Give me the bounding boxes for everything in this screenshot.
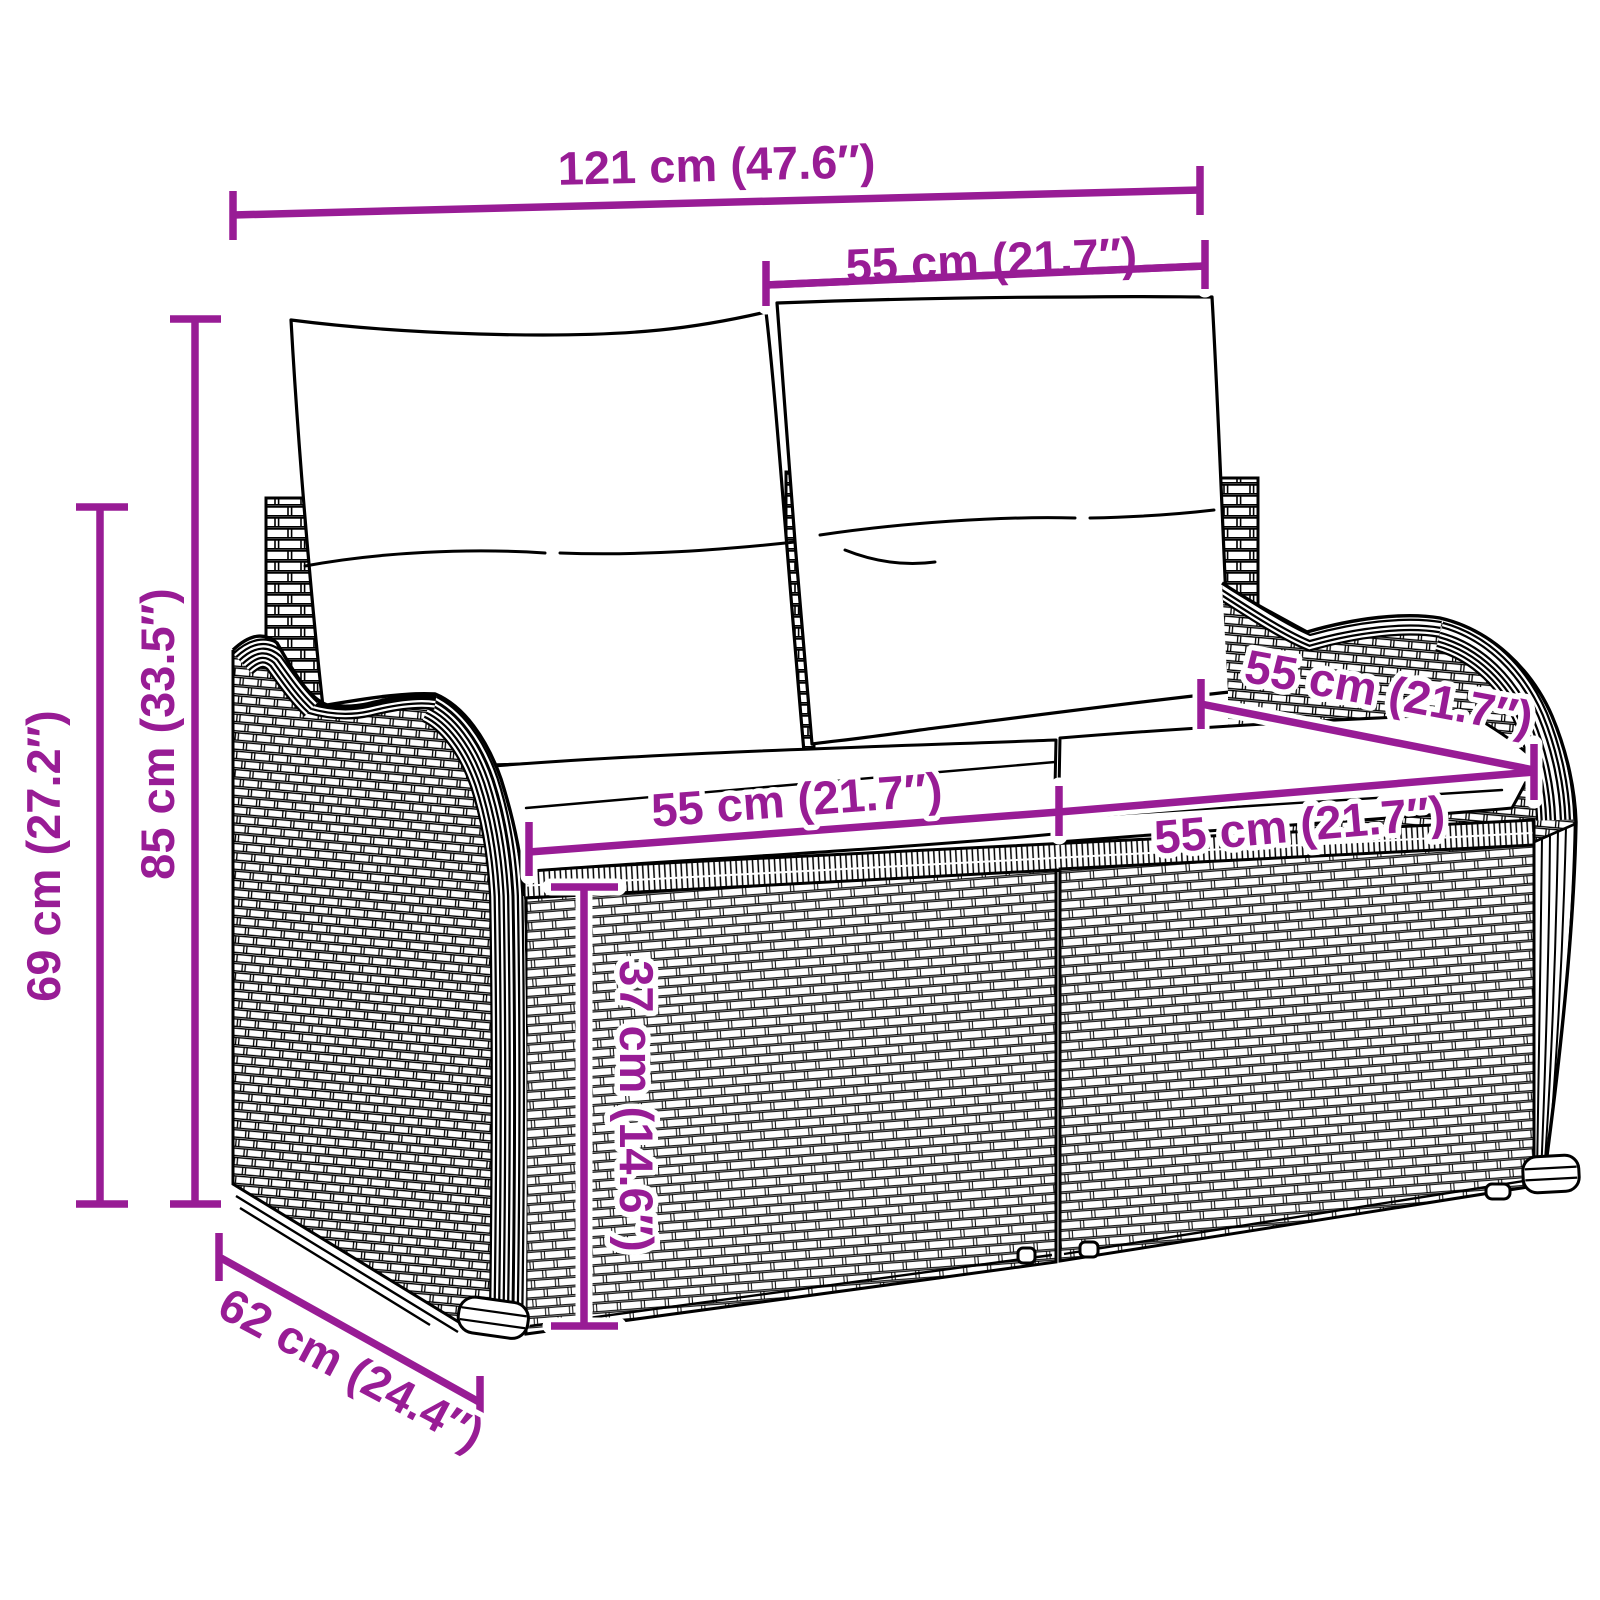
svg-text:85 cm (33.5″): 85 cm (33.5″) [131,588,184,880]
svg-text:69 cm (27.2″): 69 cm (27.2″) [17,710,70,1002]
svg-text:37 cm (14.6″): 37 cm (14.6″) [610,960,663,1252]
svg-text:121 cm (47.6″): 121 cm (47.6″) [557,134,876,195]
